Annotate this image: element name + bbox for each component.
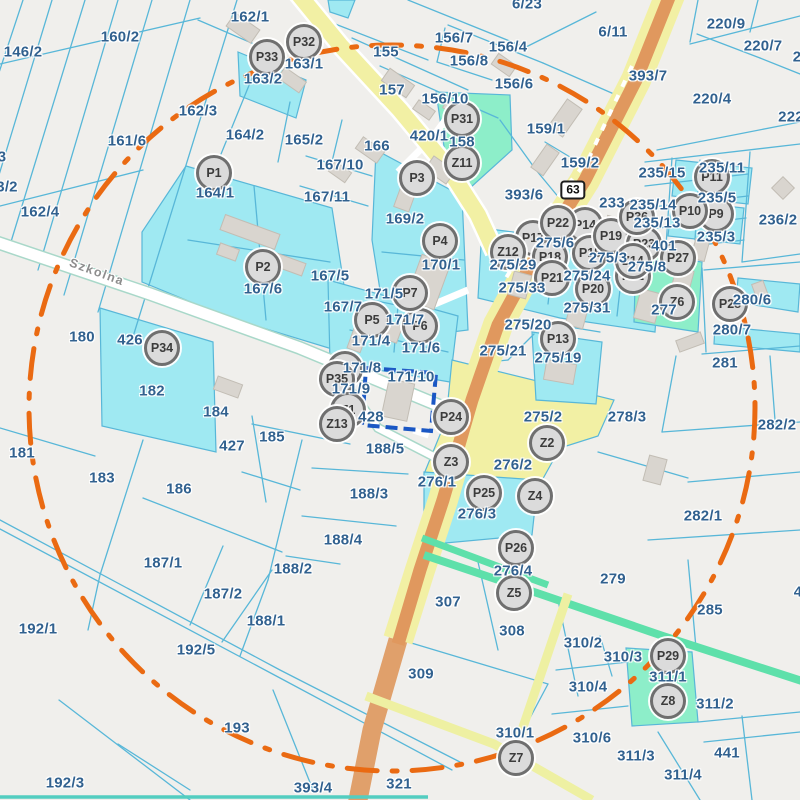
survey-marker-p10[interactable]: P10 [672,193,708,229]
survey-marker-z13[interactable]: Z13 [319,406,355,442]
survey-marker-p5[interactable]: P5 [354,302,390,338]
map-canvas [0,0,800,800]
survey-marker-p24[interactable]: P24 [433,399,469,435]
survey-marker-p31[interactable]: P31 [444,101,480,137]
survey-marker-z7[interactable]: Z7 [498,740,534,776]
survey-marker-p22[interactable]: P22 [540,205,576,241]
survey-marker-p2[interactable]: P2 [245,249,281,285]
survey-marker-p6[interactable]: P6 [402,308,438,344]
survey-marker-p28[interactable]: P28 [712,286,748,322]
survey-marker-p3[interactable]: P3 [399,160,435,196]
survey-marker-p27[interactable]: P27 [660,240,696,276]
survey-marker-p20[interactable]: P20 [575,271,611,307]
survey-marker-p34[interactable]: P34 [144,330,180,366]
survey-marker-p32[interactable]: P32 [286,24,322,60]
survey-marker-p13[interactable]: P13 [540,321,576,357]
survey-marker-z12[interactable]: Z12 [490,234,526,270]
survey-marker-p4[interactable]: P4 [422,223,458,259]
survey-marker-z8[interactable]: Z8 [650,683,686,719]
survey-marker-p25[interactable]: P25 [466,475,502,511]
survey-marker-z2[interactable]: Z2 [529,425,565,461]
survey-marker-z4[interactable]: Z4 [517,478,553,514]
survey-marker-p7[interactable]: P7 [392,275,428,311]
survey-marker-z3[interactable]: Z3 [433,444,469,480]
survey-marker-p33[interactable]: P33 [249,39,285,75]
survey-marker-p26[interactable]: P26 [498,530,534,566]
survey-marker-p21[interactable]: P21 [534,260,570,296]
survey-marker-p36[interactable]: P36 [619,199,655,235]
survey-marker-p29[interactable]: P29 [650,638,686,674]
map-viewport[interactable]: P1P2P3P4P5P6P7P8P9P10P11P12P13P14P15P17P… [0,0,800,800]
cyan-parcel [714,326,800,352]
mint-road [422,538,800,682]
survey-marker-z14[interactable]: Z14 [615,243,651,279]
survey-marker-z5[interactable]: Z5 [496,575,532,611]
survey-marker-z6[interactable]: Z6 [659,284,695,320]
survey-marker-p11[interactable]: P11 [694,159,730,195]
survey-marker-p1[interactable]: P1 [196,155,232,191]
survey-marker-z11[interactable]: Z11 [444,145,480,181]
cyan-parcel [328,0,355,18]
